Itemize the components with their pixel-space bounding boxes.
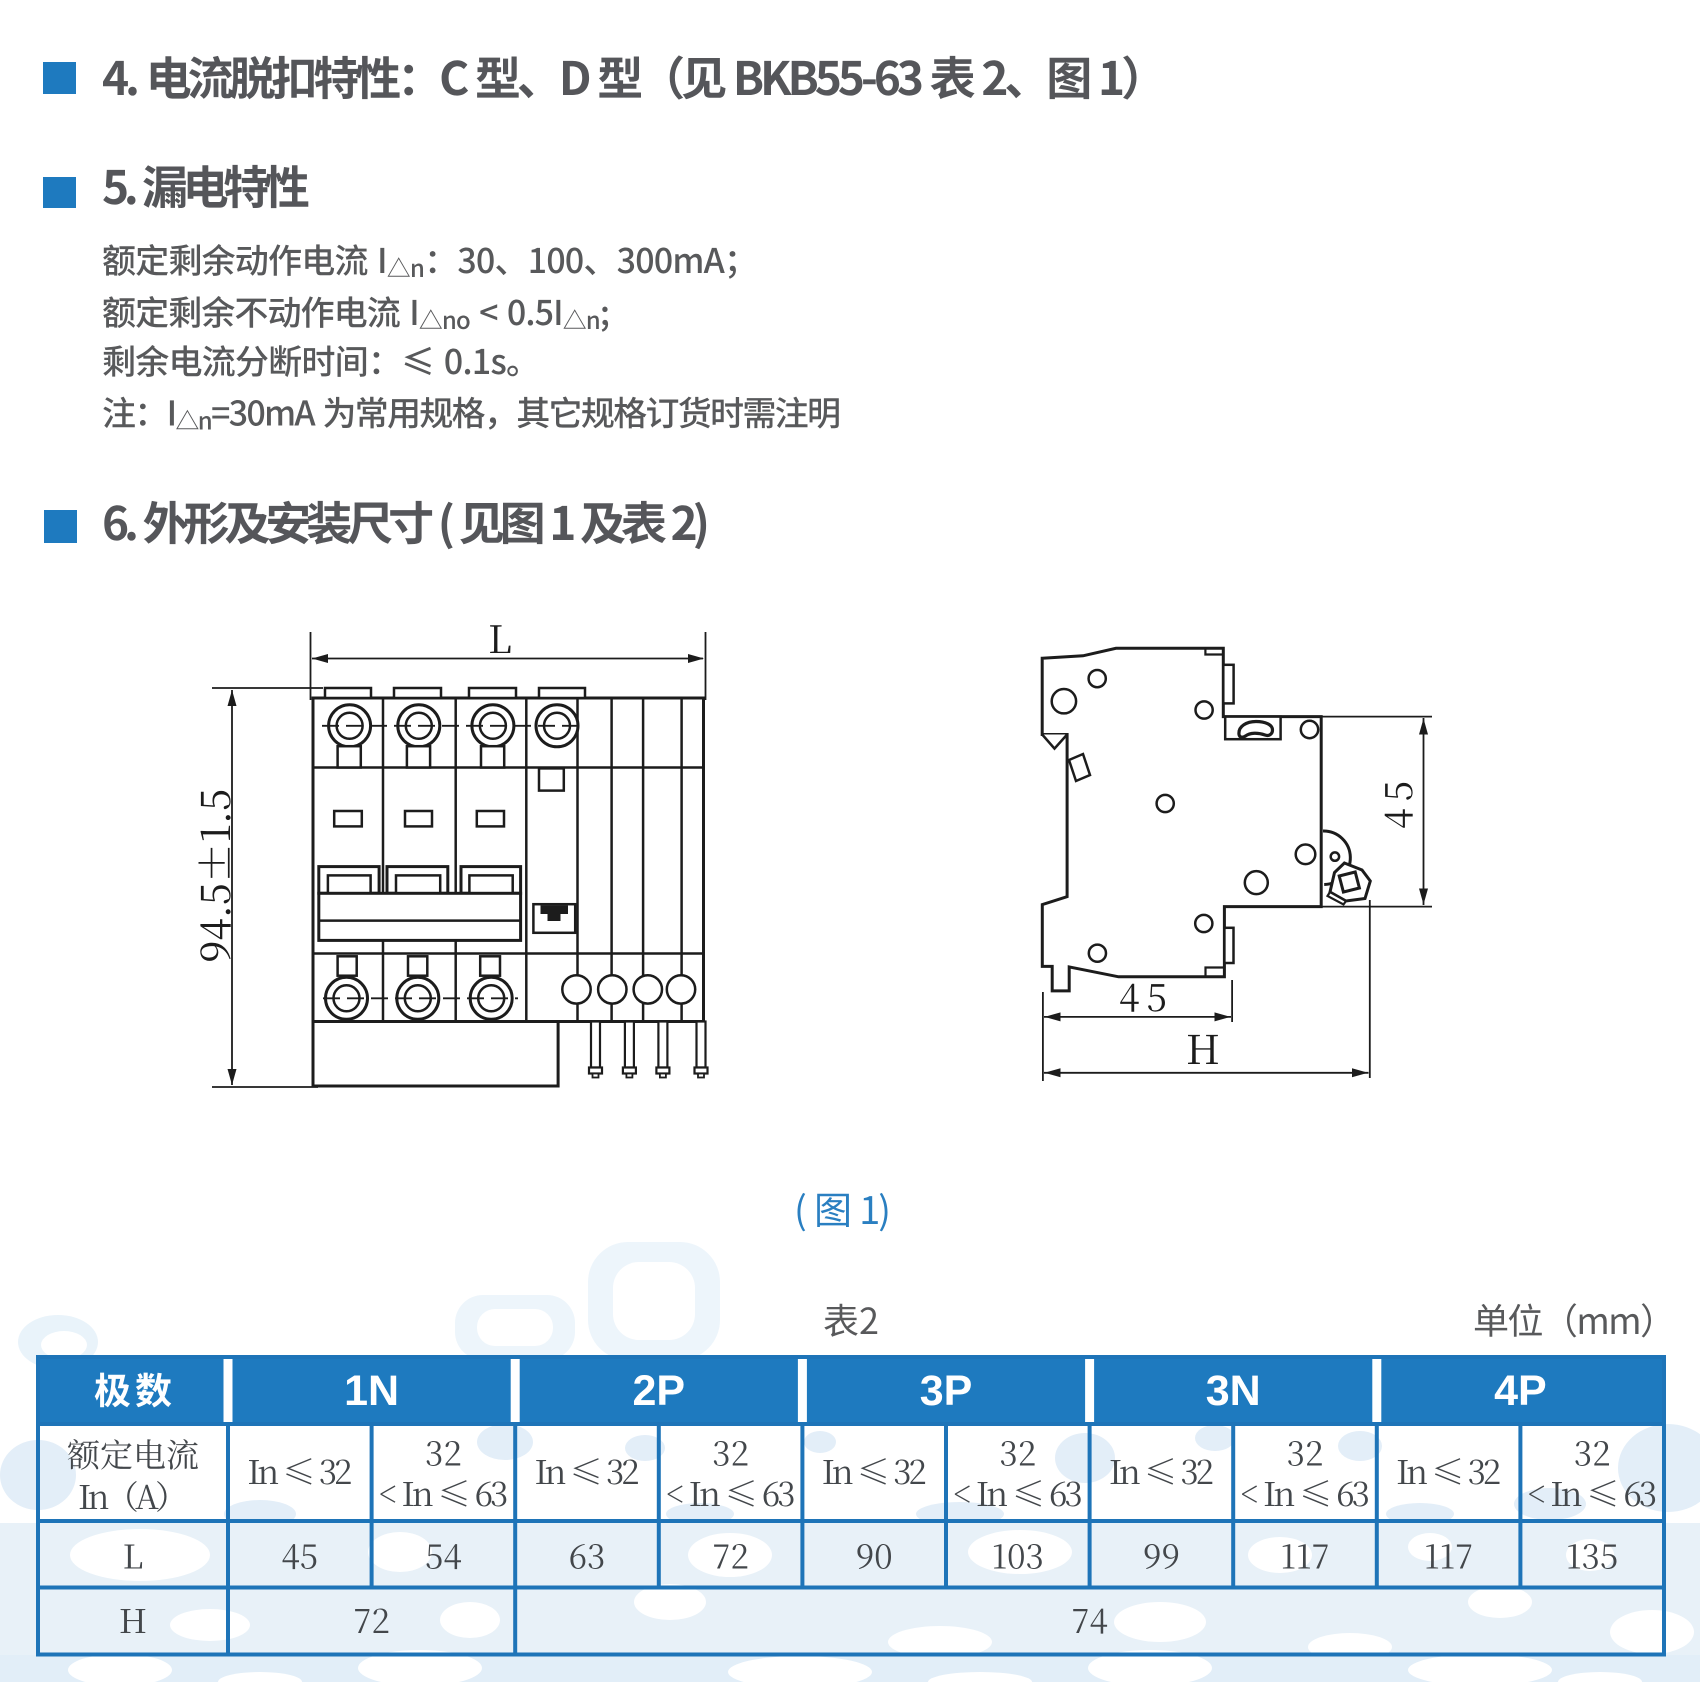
svg-text:3P: 3P [920, 1367, 973, 1415]
svg-text:3N: 3N [1206, 1367, 1261, 1415]
svg-text:2P: 2P [632, 1367, 685, 1415]
svg-text:1N: 1N [344, 1367, 399, 1415]
svg-text:4P: 4P [1494, 1367, 1547, 1415]
